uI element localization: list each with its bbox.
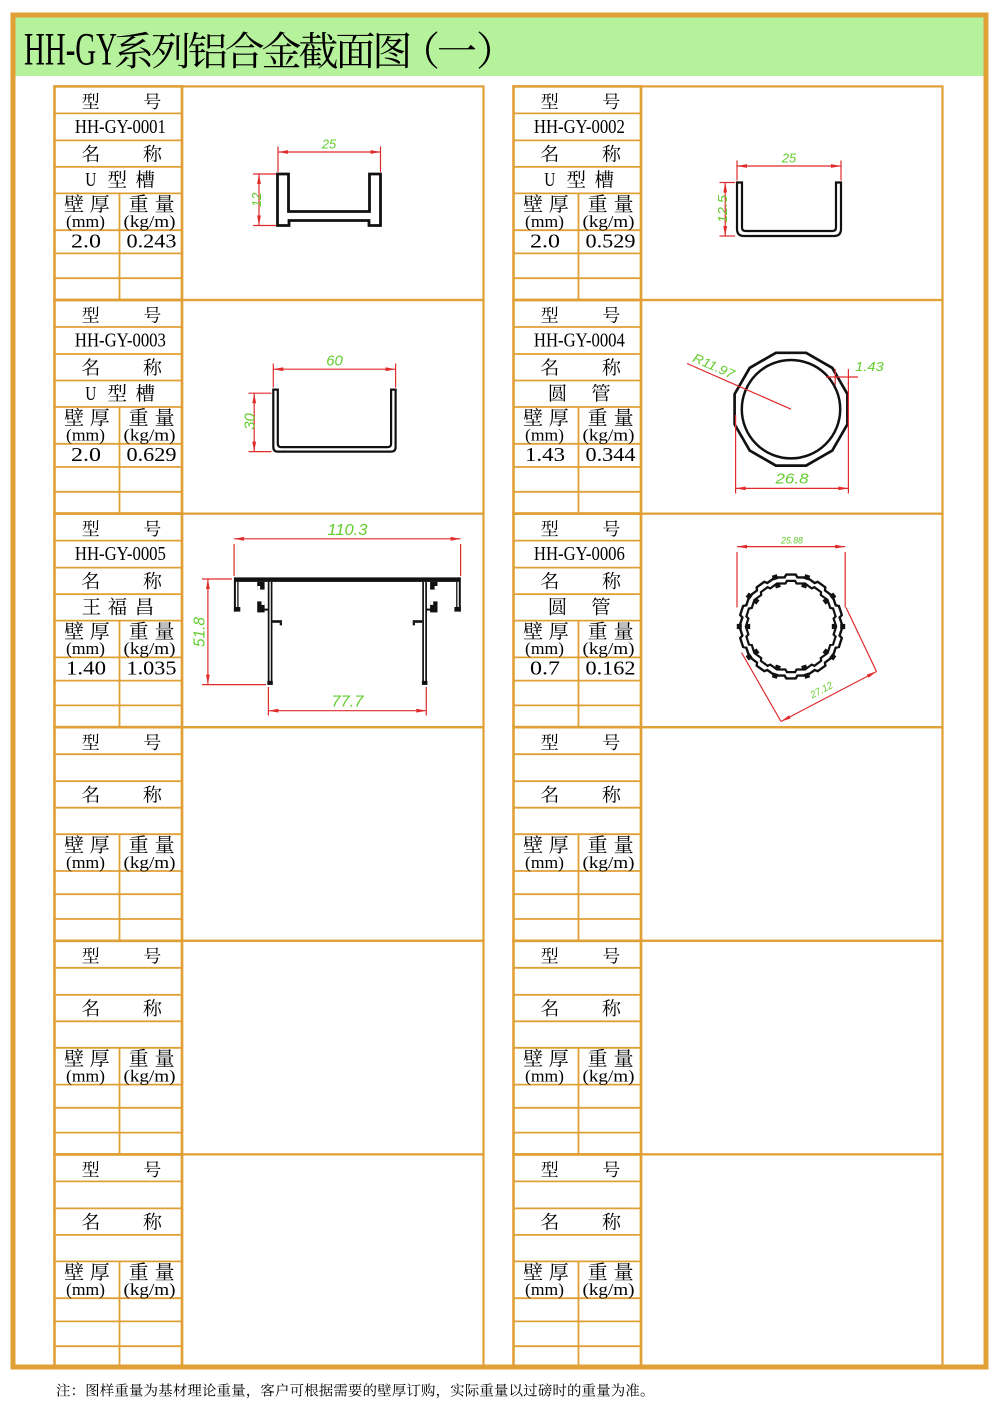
svg-text:2.0: 2.0 (71, 444, 101, 466)
svg-text:26.8: 26.8 (774, 471, 809, 488)
svg-text:HH-GY-0002: HH-GY-0002 (534, 117, 625, 138)
svg-text:HH-GY: HH-GY (24, 24, 117, 76)
svg-text:0.243: 0.243 (127, 230, 177, 252)
svg-text:12.5: 12.5 (715, 194, 730, 223)
svg-text:25.88: 25.88 (780, 536, 803, 546)
svg-text:77.7: 77.7 (331, 694, 364, 711)
svg-text:1.035: 1.035 (127, 658, 177, 680)
svg-text:60: 60 (326, 353, 343, 370)
svg-text:1.43: 1.43 (525, 444, 565, 466)
svg-text:0.162: 0.162 (586, 658, 636, 680)
svg-text:25: 25 (321, 137, 337, 152)
svg-text:HH-GY-0006: HH-GY-0006 (534, 544, 625, 565)
svg-text:2.0: 2.0 (71, 230, 101, 252)
svg-text:51.8: 51.8 (192, 617, 209, 647)
svg-text:HH-GY-0003: HH-GY-0003 (75, 330, 166, 351)
svg-text:0.7: 0.7 (530, 658, 560, 680)
svg-text:25: 25 (781, 151, 797, 166)
svg-text:30: 30 (242, 413, 259, 430)
svg-text:2.0: 2.0 (530, 230, 560, 252)
svg-text:1.40: 1.40 (66, 658, 106, 680)
svg-text:HH-GY-0001: HH-GY-0001 (75, 117, 166, 138)
svg-text:110.3: 110.3 (327, 522, 367, 539)
svg-text:0.529: 0.529 (586, 230, 636, 252)
svg-text:12: 12 (249, 192, 264, 207)
svg-text:HH-GY-0004: HH-GY-0004 (534, 330, 625, 351)
svg-text:HH-GY-0005: HH-GY-0005 (75, 544, 166, 565)
svg-text:0.344: 0.344 (586, 444, 636, 466)
svg-text:1.43: 1.43 (855, 359, 884, 374)
svg-text:0.629: 0.629 (127, 444, 177, 466)
